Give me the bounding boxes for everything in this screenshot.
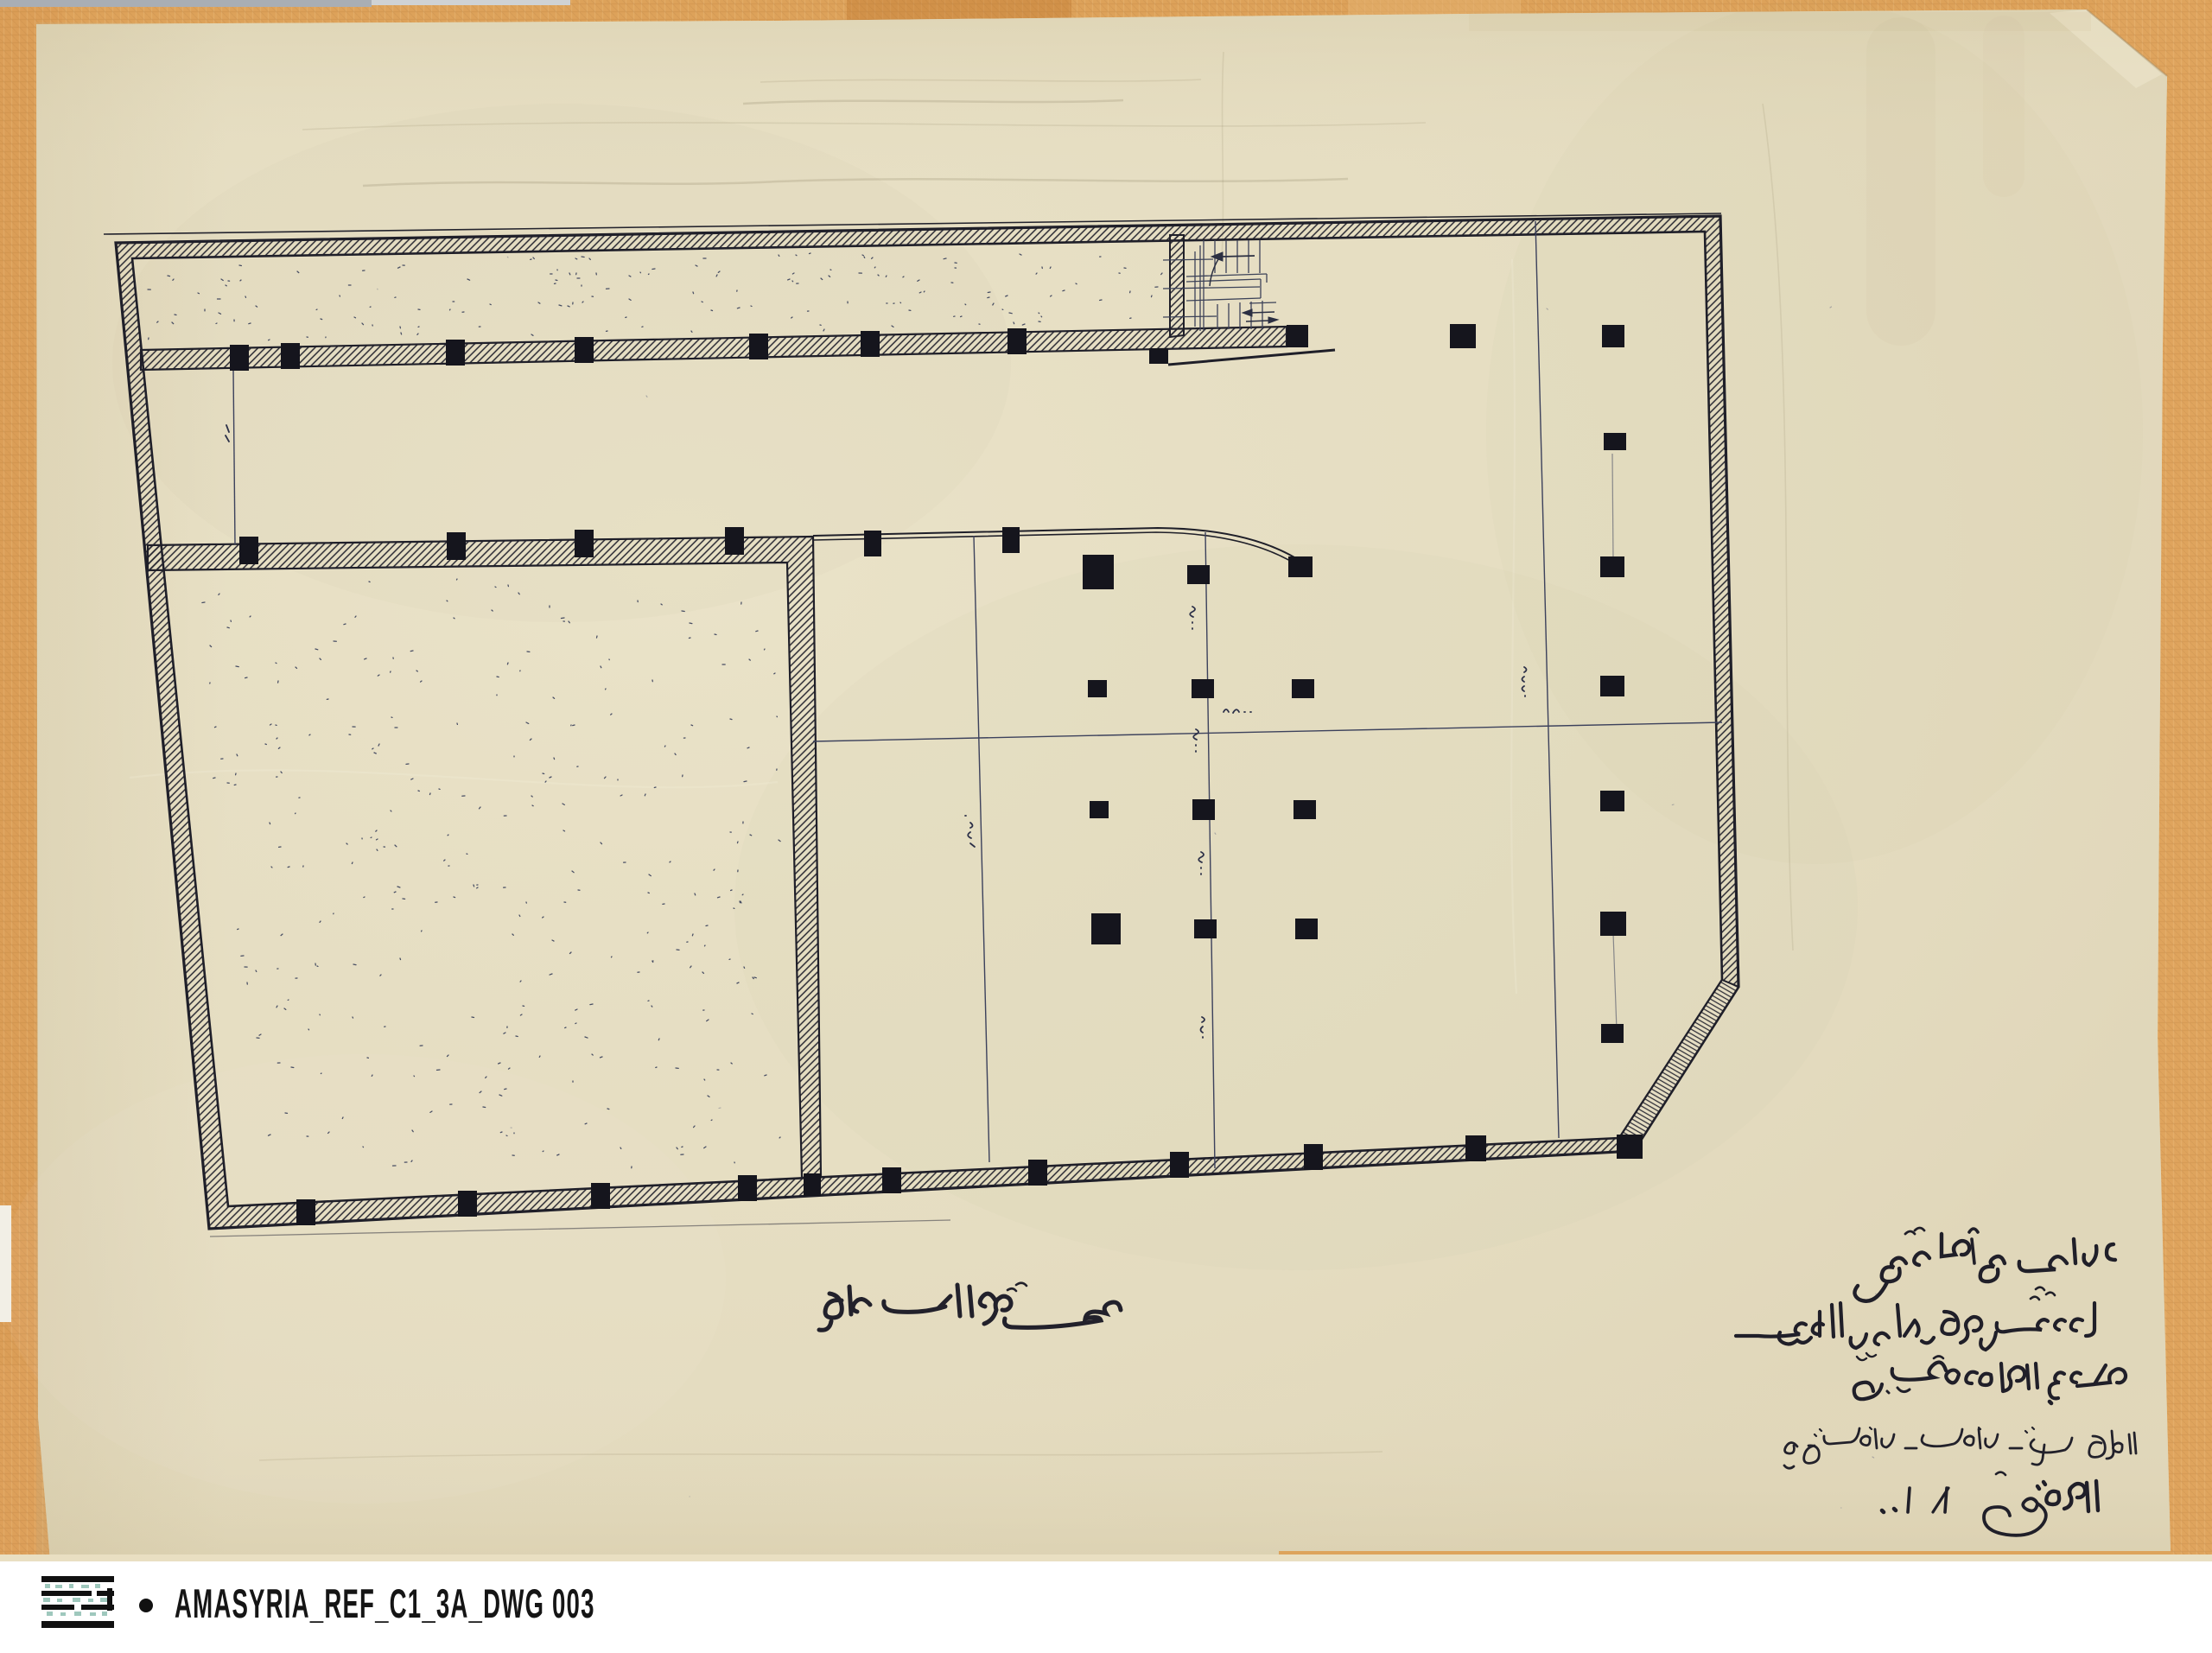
svg-text:AMASYRIA_REF_C1_3A_DWG 003: AMASYRIA_REF_C1_3A_DWG 003 (175, 1582, 595, 1627)
